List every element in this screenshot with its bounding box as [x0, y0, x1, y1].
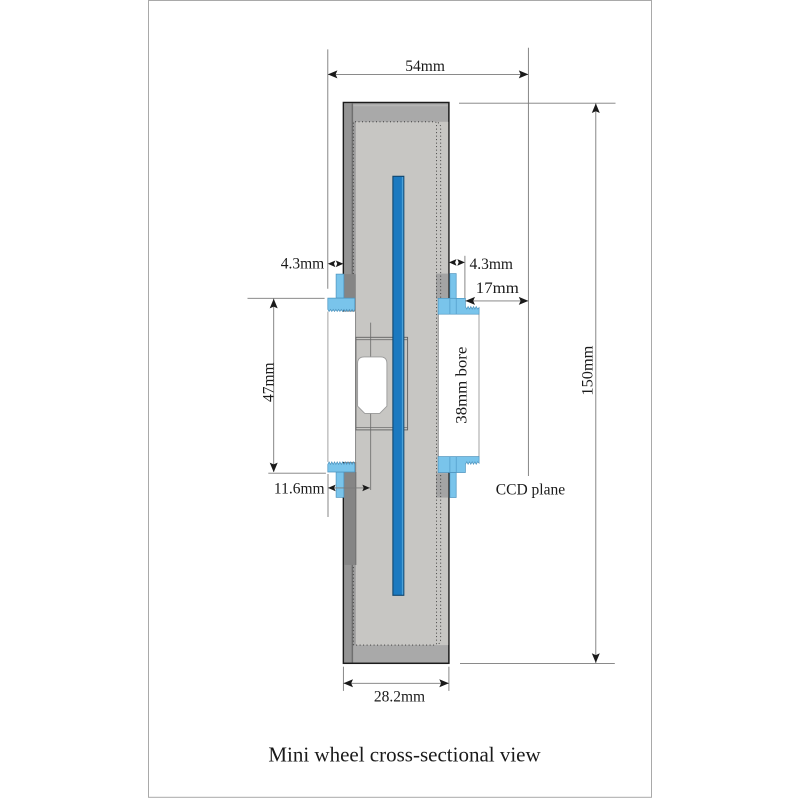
svg-text:38mm bore: 38mm bore	[454, 347, 471, 424]
svg-text:Mini wheel cross-sectional vie: Mini wheel cross-sectional view	[268, 743, 541, 767]
svg-text:11.6mm: 11.6mm	[274, 481, 325, 498]
svg-text:47mm: 47mm	[261, 362, 278, 402]
svg-text:4.3mm: 4.3mm	[470, 256, 514, 273]
svg-text:54mm: 54mm	[405, 58, 445, 75]
svg-text:150mm: 150mm	[580, 346, 597, 396]
svg-text:4.3mm: 4.3mm	[281, 256, 325, 273]
svg-text:28.2mm: 28.2mm	[374, 689, 425, 706]
svg-text:17mm: 17mm	[476, 280, 519, 297]
svg-text:CCD plane: CCD plane	[496, 482, 565, 499]
